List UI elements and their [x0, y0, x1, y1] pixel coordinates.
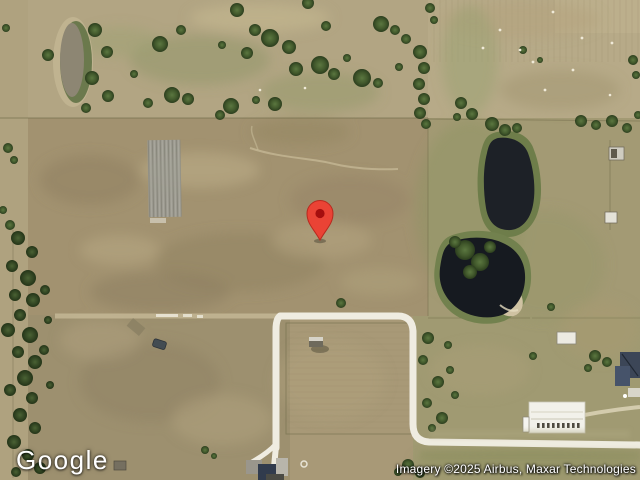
- tilled-patch: [147, 140, 181, 223]
- barn-building: [523, 402, 585, 433]
- shed-bottom-left: [114, 461, 126, 470]
- pond-top-left: [53, 17, 93, 107]
- satellite-imagery[interactable]: [0, 0, 640, 480]
- imagery-attribution: Imagery ©2025 Airbus, Maxar Technologies: [396, 462, 636, 476]
- mowed-field: [288, 325, 410, 432]
- pond-upper-right: [478, 131, 542, 237]
- google-logo[interactable]: Google: [16, 445, 109, 476]
- map-viewport[interactable]: Google Imagery ©2025 Airbus, Maxar Techn…: [0, 0, 640, 480]
- pond-lower-right: [434, 231, 531, 324]
- small-shed-north: [557, 332, 576, 344]
